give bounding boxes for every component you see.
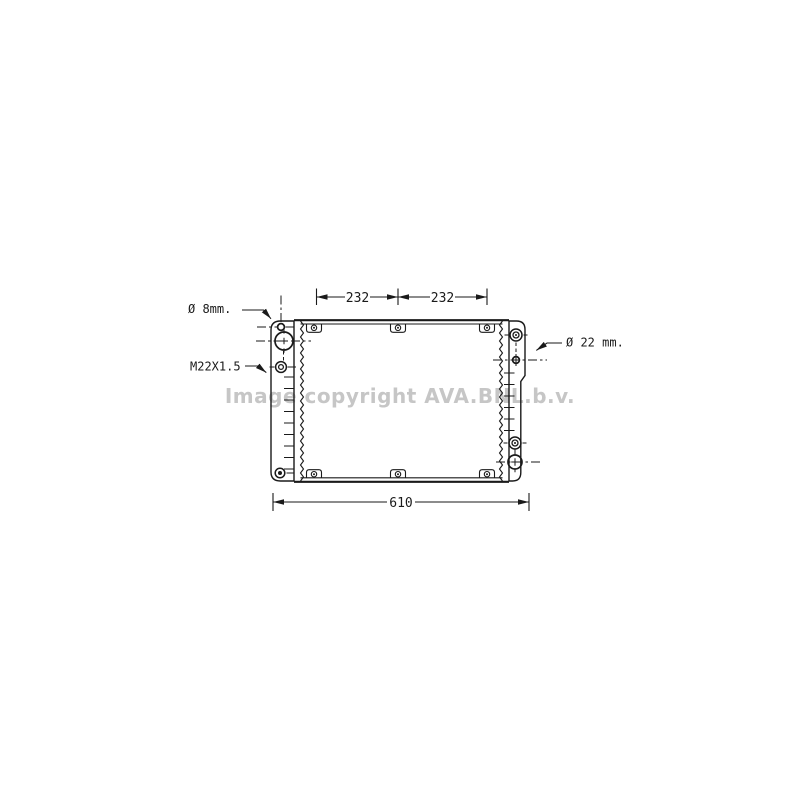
mounting-tab-bottom-center xyxy=(391,470,406,478)
radiator-technical-drawing: Image copyright AVA.BNL.b.v. xyxy=(0,0,800,800)
dimension-top-left-value: 232 xyxy=(346,291,369,306)
page: Image copyright AVA.BNL.b.v. xyxy=(0,0,800,800)
dimension-top-right-value: 232 xyxy=(431,291,454,306)
leader-outlet-22mm xyxy=(536,343,562,350)
mounting-tab-top-left xyxy=(307,324,322,332)
watermark-text: Image copyright AVA.BNL.b.v. xyxy=(225,384,575,408)
mounting-tab-bottom-left xyxy=(307,470,322,478)
mounting-tab-top-right xyxy=(480,324,495,332)
label-small-hole: Ø 8mm. xyxy=(188,302,231,316)
mounting-tab-top-center xyxy=(391,324,406,332)
dimension-overall-width-value: 610 xyxy=(389,496,412,511)
fitting-bottom-right xyxy=(504,437,527,449)
mounting-tab-bottom-right xyxy=(480,470,495,478)
leader-hole-8mm xyxy=(242,310,271,319)
fitting-top-right xyxy=(505,329,528,341)
bolt-bottom-left xyxy=(275,468,294,478)
leader-thread-m22 xyxy=(245,366,266,373)
thread-boss-m22 xyxy=(270,362,297,373)
label-outlet: Ø 22 mm. xyxy=(566,336,624,350)
mounting-hole-8mm xyxy=(278,324,294,331)
label-thread: M22X1.5 xyxy=(190,360,241,374)
